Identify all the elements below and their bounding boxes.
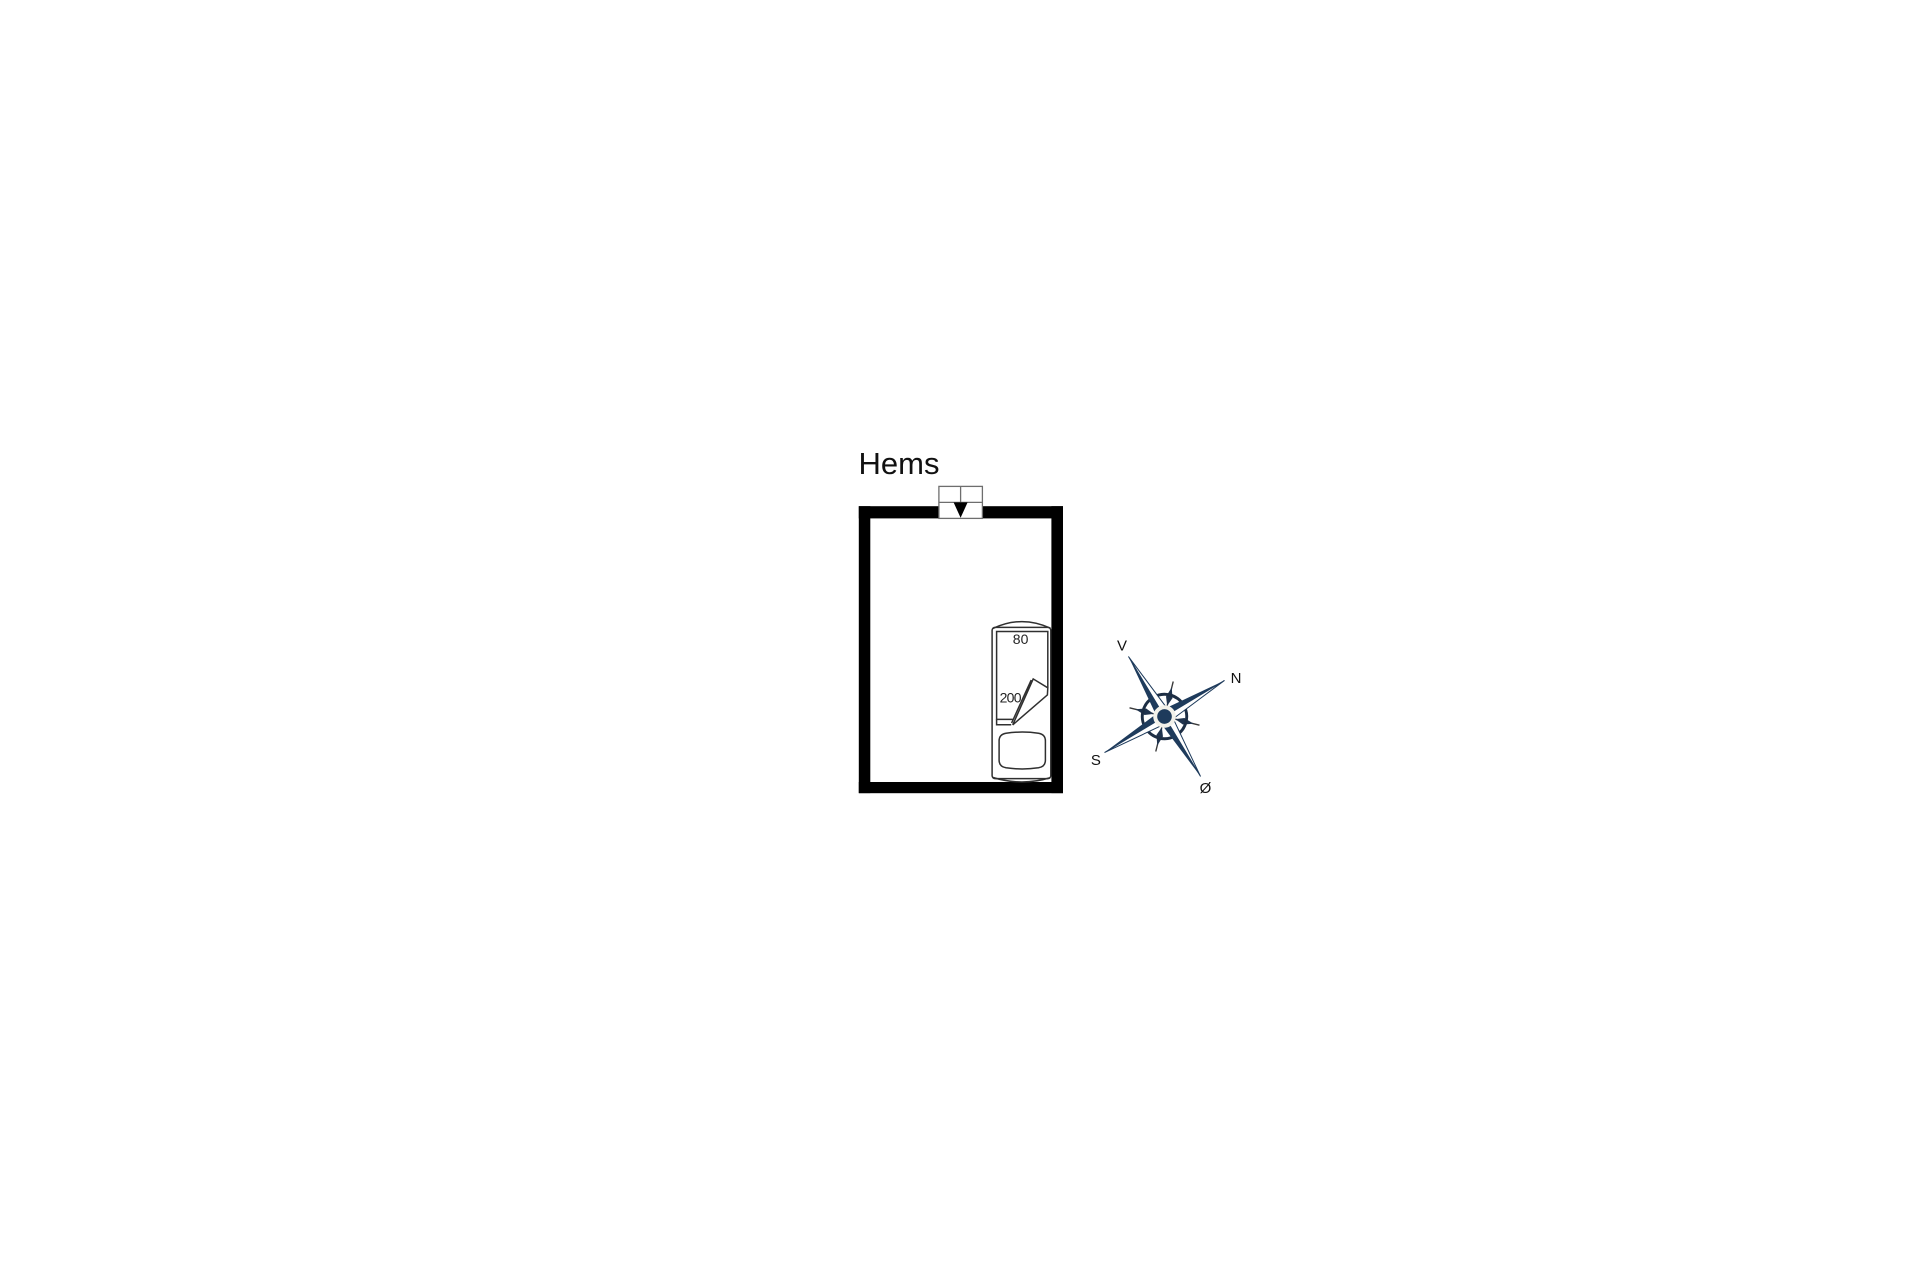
svg-text:V: V bbox=[1117, 638, 1127, 655]
svg-text:200: 200 bbox=[1000, 689, 1022, 705]
svg-text:N: N bbox=[1231, 670, 1242, 687]
svg-text:80: 80 bbox=[1013, 631, 1029, 647]
svg-text:Ø: Ø bbox=[1200, 780, 1212, 797]
svg-text:Hems: Hems bbox=[859, 446, 940, 481]
svg-text:S: S bbox=[1091, 752, 1101, 769]
